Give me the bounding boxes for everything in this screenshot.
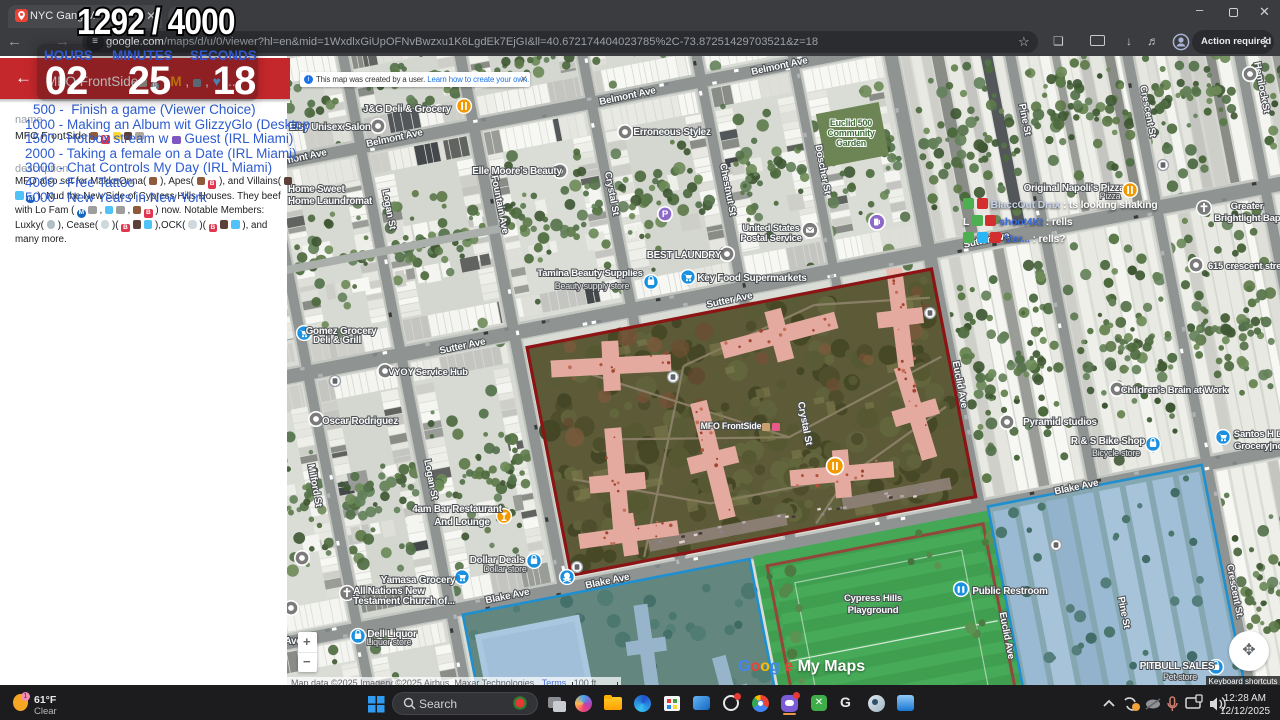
svg-text:Yamasa Grocery: Yamasa Grocery	[381, 575, 456, 586]
svg-text:R & S Bike Shop: R & S Bike Shop	[1071, 436, 1145, 447]
svg-text:Beauty supply store: Beauty supply store	[555, 281, 630, 291]
svg-text:Euclid 500: Euclid 500	[830, 118, 872, 128]
svg-text:Deli & Grill: Deli & Grill	[313, 335, 361, 346]
svg-text:Grocery|nc...: Grocery|nc...	[1234, 441, 1280, 452]
svg-text:Garden: Garden	[836, 138, 866, 148]
svg-text:Oscar Rodriguez: Oscar Rodriguez	[322, 416, 398, 427]
svg-text:Pyramid studios: Pyramid studios	[1023, 417, 1097, 428]
svg-text:Key Food Supermarkets: Key Food Supermarkets	[697, 273, 807, 284]
svg-text:Greater: Greater	[1231, 201, 1264, 212]
svg-text:4am Bar Restaurant: 4am Bar Restaurant	[412, 504, 502, 515]
svg-text:Erroneous Stylez: Erroneous Stylez	[633, 127, 711, 138]
svg-text:Testament Church of...: Testament Church of...	[353, 596, 455, 607]
svg-text:P: P	[662, 209, 669, 220]
svg-text:Brightlight Bap...: Brightlight Bap...	[1214, 213, 1280, 224]
svg-text:MFO FrontSide: MFO FrontSide	[701, 421, 762, 431]
svg-text:Pet store: Pet store	[1163, 672, 1197, 682]
svg-text:VYOY Service Hub: VYOY Service Hub	[388, 366, 468, 377]
svg-text:Children's Brain at Work: Children's Brain at Work	[1121, 385, 1228, 396]
svg-text:Dollar store: Dollar store	[483, 564, 526, 574]
svg-text:Public Restroom: Public Restroom	[972, 586, 1048, 597]
svg-text:Tamina Beauty Supplies: Tamina Beauty Supplies	[537, 268, 643, 279]
svg-text:And Lounge: And Lounge	[434, 517, 490, 528]
svg-text:Liquor store: Liquor store	[367, 637, 412, 647]
svg-text:1292 / 4000: 1292 / 4000	[77, 2, 235, 42]
svg-text:Postal Service: Postal Service	[740, 232, 801, 243]
svg-text:Elle Moore's Beauty: Elle Moore's Beauty	[472, 166, 562, 177]
svg-text:J&G Deli & Grocery: J&G Deli & Grocery	[363, 104, 452, 115]
svg-text:PITBULL SALES: PITBULL SALES	[1140, 661, 1215, 672]
svg-text:Cypress Hills: Cypress Hills	[844, 593, 902, 604]
svg-text:BEST LAUNDRY: BEST LAUNDRY	[647, 250, 722, 261]
svg-text:Bicycle store: Bicycle store	[1092, 448, 1140, 458]
svg-text:Santos H D...: Santos H D...	[1234, 429, 1280, 440]
svg-text:Community: Community	[827, 128, 875, 138]
svg-text:Playground: Playground	[848, 605, 899, 616]
svg-text:615 crescent stree...: 615 crescent stree...	[1208, 260, 1280, 271]
